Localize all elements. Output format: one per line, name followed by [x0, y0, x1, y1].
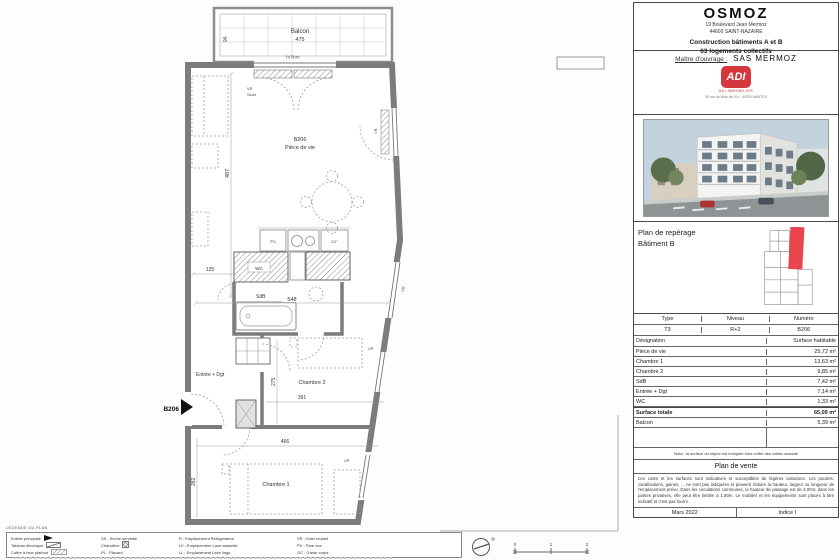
reperage-subtitle: Bâtiment B [638, 238, 734, 249]
dim-548: 548 [287, 297, 296, 303]
vr-label: VR [400, 286, 406, 292]
table-row: WC1,33 m² [634, 397, 838, 407]
adi-address: 30 rue du Bois de l'Or - 44300 NANTES [634, 95, 838, 99]
legend-label: LL : Emplacement Lave linge [179, 550, 230, 555]
col-numero: Numéro [770, 316, 838, 322]
floor-plan-drawing: Balcon 475 94 ht libre VR Seuil VR VR VR [0, 0, 632, 560]
seuil-label: Seuil [247, 92, 256, 97]
living-label: Pièce de vie [285, 145, 315, 151]
table-empty-space [634, 428, 838, 448]
legend-label: PL : Placard [101, 550, 123, 555]
legend-label: LV : Emplacement Lave vaisselle [179, 543, 238, 548]
unit-level: R+2 [702, 327, 770, 333]
table-row: Pièce de vie25,72 m² [634, 347, 838, 357]
entry-unit-tag: B206 [163, 406, 179, 413]
chambre1-label: Chambre 1 [262, 482, 289, 488]
col-designation: Désignation [634, 338, 767, 344]
legend-label: Entrée principale [11, 536, 41, 541]
disclaimer-text: Les cotes et les surfaces sont indicativ… [634, 474, 838, 508]
col-niveau: Niveau [702, 316, 770, 322]
key-plan [734, 227, 834, 308]
ceiling-box-icon [51, 549, 67, 556]
building-photo-block [634, 115, 838, 222]
balcony-dim: 475 [295, 37, 304, 43]
client-block: Maître d'ouvrage : SAS MERMOZ ADI ADI IM… [634, 51, 838, 115]
table-row-balcony: Balcon 5,39 m² [634, 418, 838, 428]
ht-libre-note: ht libre [286, 55, 300, 60]
sdb-label: SdB [256, 294, 266, 300]
electrical-panel-icon [46, 542, 61, 549]
legend-label: Chaudière [101, 543, 119, 548]
dishwasher-label: LV [331, 239, 336, 244]
main-entrance-arrow-icon [44, 535, 54, 542]
wc-label: WC [255, 266, 263, 271]
client-name: SAS MERMOZ [733, 54, 797, 63]
fine-print-smudge [14, 557, 394, 559]
table-row-total: Surface totale 65,09 m² [634, 407, 838, 418]
legend-label: R : Emplacement Réfrigérateur [179, 536, 234, 541]
dim-282: 282 [191, 477, 197, 486]
adi-logo: ADI [721, 66, 751, 88]
building-photo [643, 119, 829, 217]
scale-bar: 0 1 2 [514, 542, 589, 554]
unit-number: B206 [770, 327, 838, 333]
project-header: OSMOZ 19 Boulevard Jean Mermoz 44600 SAI… [634, 3, 838, 51]
dim-487: 487 [225, 169, 231, 178]
reperage-title: Plan de repérage [638, 227, 734, 238]
vr-label: VR [373, 128, 378, 134]
highlighted-unit [788, 227, 804, 270]
project-address-1: 19 Boulevard Jean Mermoz [634, 22, 838, 29]
col-type: Type [634, 316, 702, 322]
col-surface: Surface habitable [767, 338, 838, 344]
sheet-frame [440, 415, 618, 531]
vr-label: VR [247, 86, 253, 91]
project-address-2: 44600 SAINT-NAZAIRE [634, 29, 838, 36]
legend-label: PV : Pare vue [297, 543, 322, 548]
reperage-block: Plan de repérage Bâtiment B [634, 222, 838, 314]
project-title: OSMOZ [634, 5, 838, 22]
legend-title: LEGENDE DU PLAN [6, 526, 462, 530]
legend-label: Tableau électrique [11, 543, 43, 548]
kitchen-units: Fo LV [258, 228, 350, 251]
vr-label: VR [344, 458, 350, 463]
balcony-label: Balcon [291, 29, 309, 35]
table-row: Entrée + Dgt7,14 m² [634, 387, 838, 397]
boiler-icon [122, 541, 129, 549]
date-cell: Mars 2022 [634, 508, 737, 517]
legend-label: Coffre à faux plafond [11, 550, 48, 555]
legend-label: SS : Sèche serviette [101, 536, 137, 541]
table-row: SdB7,42 m² [634, 377, 838, 387]
north-arrow-icon [473, 538, 495, 556]
table-row: Chambre 113,63 m² [634, 357, 838, 367]
title-block-panel: OSMOZ 19 Boulevard Jean Mermoz 44600 SAI… [633, 2, 839, 518]
dim-466: 466 [281, 439, 290, 445]
adi-tagline: ADI IMMOBILIER [634, 89, 838, 93]
scale-0: 0 [514, 542, 517, 547]
legend-label: VR : Volet roulant [297, 536, 328, 541]
living-code-label: B206 [294, 137, 307, 143]
entree-label: Entrée + Dgt [196, 372, 225, 378]
legend-label: GC : Garde corps [297, 550, 328, 555]
plan-legend: LEGENDE DU PLAN Entrée principale Tablea… [6, 526, 462, 558]
chambre2-label: Chambre 2 [298, 380, 325, 386]
scale-1: 1 [550, 542, 553, 547]
dim-275: 275 [271, 377, 277, 386]
footer-row: Mars 2022 Indice I [634, 508, 838, 517]
balcony-side-dim: 94 [223, 36, 229, 42]
frame-box [557, 57, 604, 69]
project-desc-1: Construction bâtiments A et B [634, 38, 838, 47]
table-row: Chambre 29,85 m² [634, 367, 838, 377]
scale-2: 2 [586, 542, 589, 547]
oven-label: Fo [270, 239, 276, 244]
unit-type: T3 [634, 327, 702, 333]
indice-cell: Indice I [737, 508, 839, 517]
surface-table: Type Niveau Numéro T3 R+2 B206 Désignati… [634, 314, 838, 448]
nota-line: Nota : la surface du séjour est indiquée… [634, 448, 838, 460]
vr-label: VR [368, 346, 374, 351]
client-label: Maître d'ouvrage : [675, 56, 727, 63]
dim-391: 391 [298, 395, 307, 401]
balcony: Balcon 475 94 ht libre [214, 8, 392, 62]
dim-125: 125 [206, 267, 215, 273]
plan-de-vente-title: Plan de vente [634, 460, 838, 474]
